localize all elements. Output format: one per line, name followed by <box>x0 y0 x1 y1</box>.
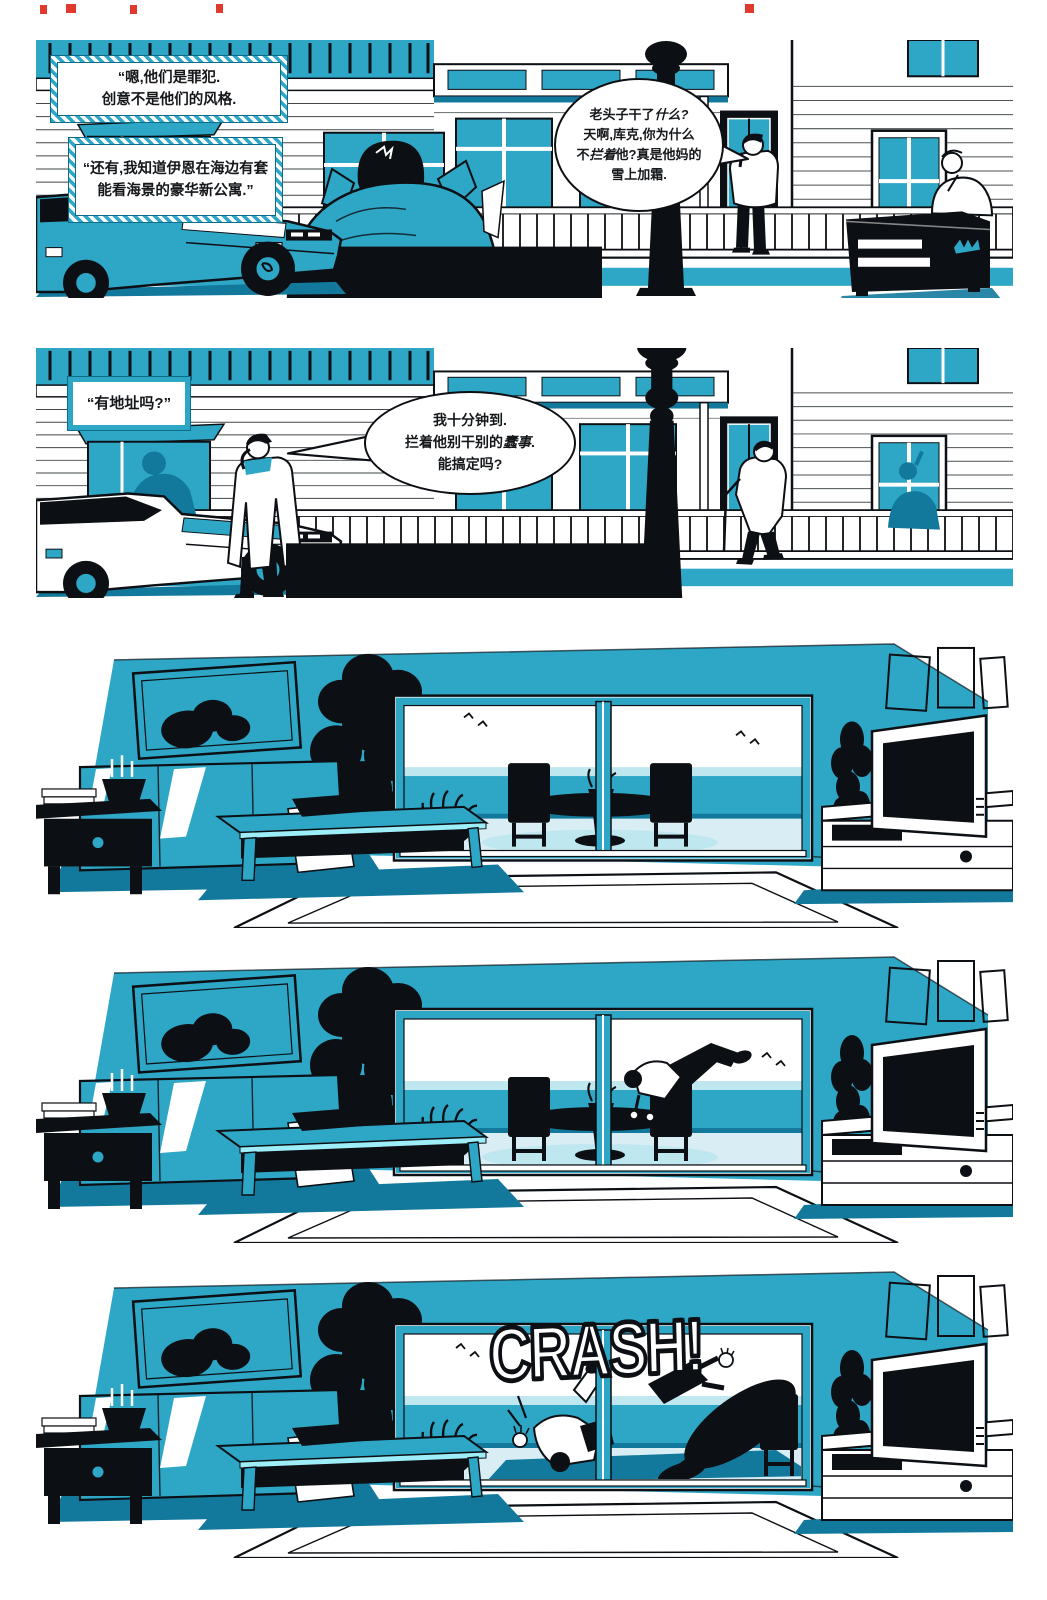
print-artifact <box>130 5 137 14</box>
comic-panel-4 <box>36 953 1013 1243</box>
caption-text-3: “有地址吗?” <box>73 382 185 425</box>
print-artifact <box>66 4 76 13</box>
sfx-crash: CRASH! <box>488 1302 704 1399</box>
comic-panel-1: “嗯,他们是罪犯.创意不是他们的风格. “还有,我知道伊恩在海边有套能看海景的豪… <box>36 40 1013 298</box>
caption-box-2: “还有,我知道伊恩在海边有套能看海景的豪华新公寓.” <box>68 137 283 223</box>
billboard-silhouette <box>286 543 678 598</box>
comic-page: “嗯,他们是罪犯.创意不是他们的风格. “还有,我知道伊恩在海边有套能看海景的豪… <box>0 0 1047 1600</box>
print-artifact <box>745 4 754 13</box>
print-artifact <box>216 4 223 13</box>
speech-bubble-1: 老头子干了什么?天啊,库克,你为什么不拦着他?真是他妈的雪上加霜. <box>554 78 724 212</box>
caption-box-1: “嗯,他们是罪犯.创意不是他们的风格. <box>50 55 288 123</box>
caption-box-3: “有地址吗?” <box>68 377 190 430</box>
comic-panel-2: “有地址吗?” 我十分钟到.拦着他别干别的蠢事.能搞定吗? <box>36 348 1013 598</box>
panel-3-artwork <box>36 640 1013 928</box>
comic-panel-5: CRASH! <box>36 1268 1013 1558</box>
caption-text-1: “嗯,他们是罪犯.创意不是他们的风格. <box>57 62 281 116</box>
speech-bubble-2: 我十分钟到.拦着他别干别的蠢事.能搞定吗? <box>364 391 576 495</box>
caption-text-2: “还有,我知道伊恩在海边有套能看海景的豪华新公寓.” <box>75 144 276 216</box>
panel-4-artwork <box>36 953 1013 1243</box>
comic-panel-3 <box>36 640 1013 928</box>
print-artifact <box>40 5 47 14</box>
